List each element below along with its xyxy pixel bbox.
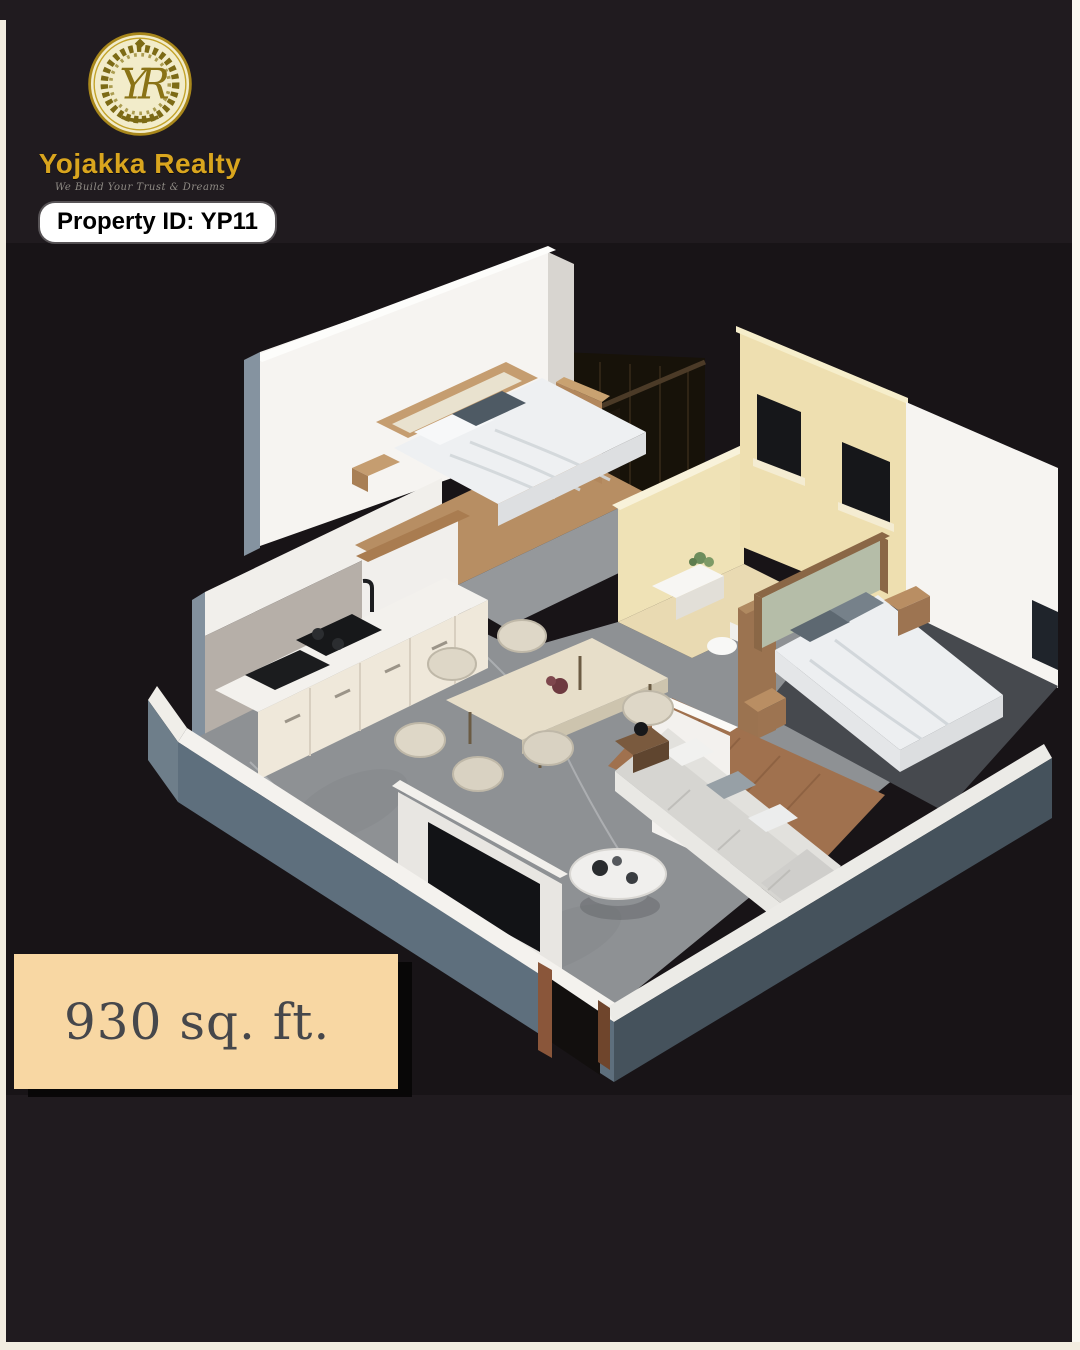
- brand-tagline: We Build Your Trust & Dreams: [37, 182, 243, 193]
- area-value: 930 sq. ft.: [64, 993, 330, 1051]
- brand-name: Yojakka Realty: [37, 148, 243, 180]
- flyer-canvas: YR Yojakka Realty We Build Your Trust & …: [0, 0, 1080, 1350]
- page-edge-right: [1072, 0, 1080, 1350]
- area-box: 930 sq. ft.: [14, 954, 398, 1089]
- property-id-badge: Property ID: YP11: [40, 203, 275, 242]
- page-edge-left: [0, 20, 6, 1350]
- brand-emblem-icon: YR: [85, 28, 195, 140]
- page-edge-bottom: [0, 1342, 1080, 1350]
- brand-logo: YR Yojakka Realty We Build Your Trust & …: [37, 28, 243, 193]
